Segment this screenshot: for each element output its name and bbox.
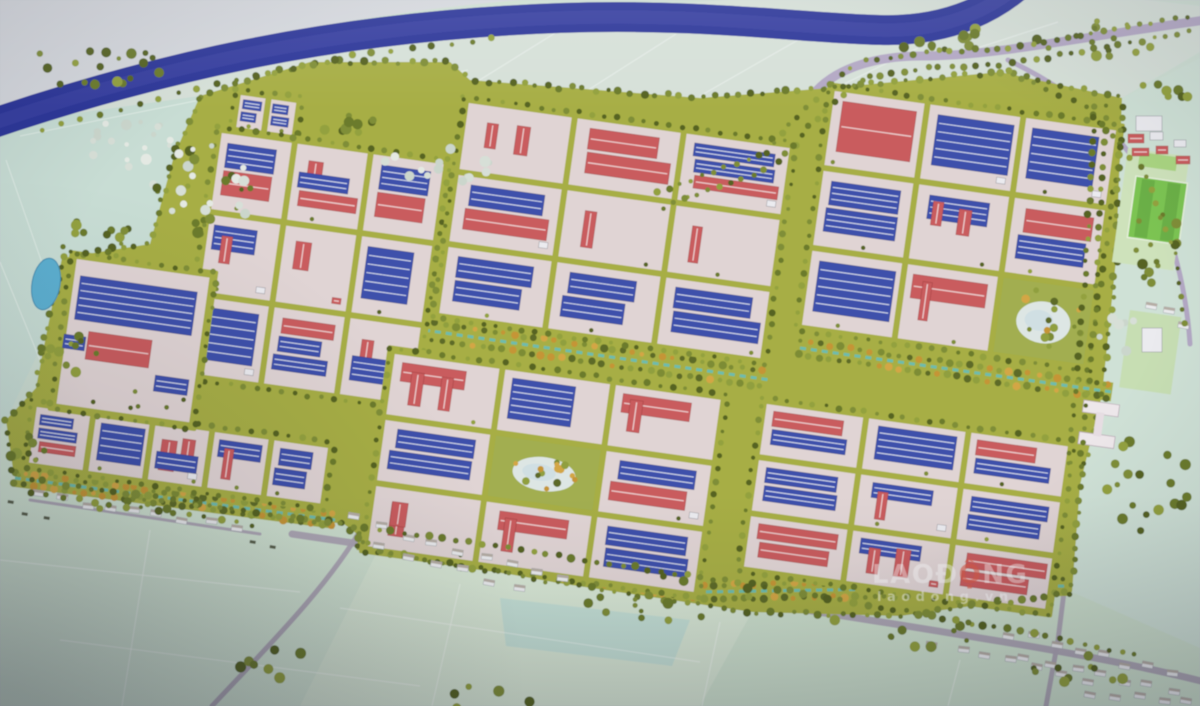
watermark-url: laodong.vn [877,590,1014,605]
map-scene [0,0,1200,706]
watermark-logo: LAOĐỘNG [872,560,1028,590]
watermark-logo-suffix: NG [982,560,1028,590]
village-house [376,521,388,528]
village-house [1167,669,1179,676]
village-house [1159,697,1171,704]
village-house [514,584,526,591]
village-house [206,517,218,524]
watermark-logo-prefix: LAOĐ [872,560,959,590]
superblock-west-factory [45,248,221,434]
master-plan-map [0,0,1200,706]
photo-of-industrial-park-master-plan: LAOĐỘNG laodong.vn [0,0,1200,706]
village-house [457,564,469,571]
village-house [1073,665,1085,672]
village-house [531,568,543,575]
superblock-east-top [791,79,1128,376]
village-house [231,524,243,531]
village-house [1005,655,1017,662]
village-house [958,646,970,653]
village-house [557,575,569,582]
village-house [1134,692,1146,700]
village-house [481,553,493,560]
village-house [425,539,437,546]
sports-field [1127,176,1187,245]
watermark-logo-accent: Ộ [959,560,983,590]
